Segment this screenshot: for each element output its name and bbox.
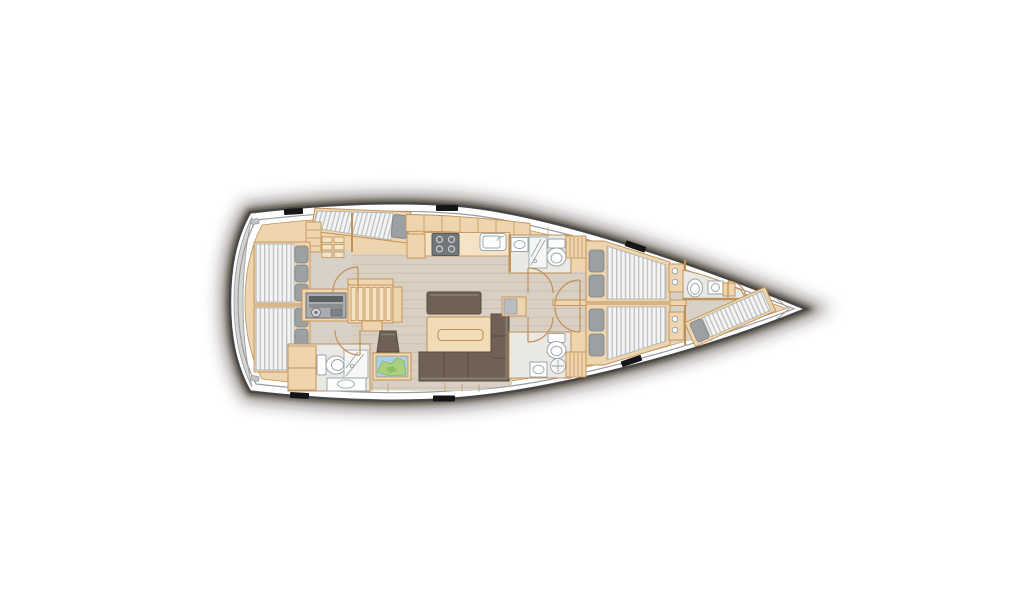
engine-detail-slot xyxy=(309,296,343,302)
step xyxy=(365,288,370,321)
shelf-decor xyxy=(672,316,678,322)
toilet xyxy=(326,356,346,374)
stove xyxy=(432,234,459,256)
page xyxy=(0,0,1024,600)
refrigerator xyxy=(407,234,425,258)
double-berth-mattress xyxy=(256,244,294,302)
engine-detail-box xyxy=(331,309,342,316)
shelf-decor xyxy=(672,279,678,285)
engine-detail-band xyxy=(309,304,343,308)
head-forward-port xyxy=(509,235,571,273)
berth-pillow xyxy=(589,250,604,272)
locker xyxy=(322,252,332,258)
side-cabinet xyxy=(393,287,402,322)
entry-wardrobe xyxy=(566,352,586,377)
deck-hatch xyxy=(290,392,309,399)
yacht-layout-plan xyxy=(0,0,1024,600)
toilet-tank xyxy=(548,239,565,248)
locker xyxy=(334,245,344,251)
toilet-tank xyxy=(317,355,326,375)
berth-pillow xyxy=(295,246,308,263)
aft-head xyxy=(288,344,370,391)
head-cabinet xyxy=(288,368,316,390)
head-cabinet xyxy=(288,346,316,368)
step xyxy=(351,288,356,321)
locker xyxy=(322,237,332,243)
step xyxy=(386,288,391,321)
dining-table xyxy=(427,317,491,353)
berth-pillow xyxy=(589,334,604,356)
engine-compartment xyxy=(302,289,350,321)
locker xyxy=(334,237,344,243)
locker xyxy=(322,245,332,251)
stern-fitting xyxy=(251,218,260,224)
deck-hatch xyxy=(433,396,455,402)
shelf xyxy=(723,283,735,296)
sideboard-top xyxy=(504,299,517,314)
entry-wardrobe xyxy=(566,236,586,258)
engine-pulley-center xyxy=(314,311,317,314)
berth-pillow xyxy=(295,265,308,282)
stairs-lower-step xyxy=(362,321,382,331)
washbasin xyxy=(708,281,723,294)
deck-hatch xyxy=(284,208,303,215)
step xyxy=(379,288,384,321)
shelf-decor xyxy=(672,268,678,274)
berth-pillow xyxy=(589,275,604,297)
deck-hatch xyxy=(436,205,458,211)
step xyxy=(358,288,363,321)
locker xyxy=(334,252,344,258)
step xyxy=(372,288,377,321)
berth-pillow xyxy=(589,309,604,331)
stern-fitting xyxy=(251,375,260,381)
shelf-decor xyxy=(672,327,678,333)
